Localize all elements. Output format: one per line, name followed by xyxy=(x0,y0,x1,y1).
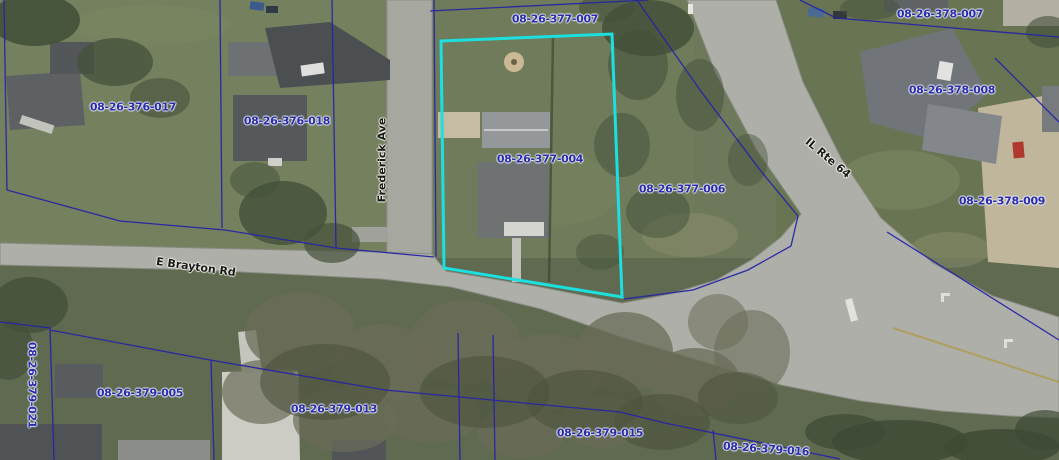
driveway xyxy=(438,112,480,138)
parcel-label-378-008: 08-26-378-008 xyxy=(909,85,995,96)
lane-arrow-marking xyxy=(688,4,693,14)
frederick-ave-road xyxy=(387,0,432,260)
parcel-label-378-007: 08-26-378-007 xyxy=(897,9,983,20)
parcel-label-379-013: 08-26-379-013 xyxy=(291,404,377,415)
red-car xyxy=(1012,142,1024,159)
parcel-label-379-005: 08-26-379-005 xyxy=(97,388,183,399)
parcel-label-379-015: 08-26-379-015 xyxy=(557,428,643,439)
parcel-label-377-004: 08-26-377-004 xyxy=(497,154,583,165)
parcel-label-377-006: 08-26-377-006 xyxy=(639,184,725,195)
road-label-frederick-ave: Frederick Ave xyxy=(377,118,388,203)
parcel-label-378-009: 08-26-378-009 xyxy=(959,196,1045,207)
parcel-label-376-017: 08-26-376-017 xyxy=(90,102,176,113)
parcel-map[interactable]: 08-26-377-007 08-26-378-007 08-26-376-01… xyxy=(0,0,1059,460)
parcel-label-376-018: 08-26-376-018 xyxy=(244,116,330,127)
parcel-label-379-021: 08-26-379-021 xyxy=(27,342,38,428)
parcel-label-377-007: 08-26-377-007 xyxy=(512,14,598,25)
